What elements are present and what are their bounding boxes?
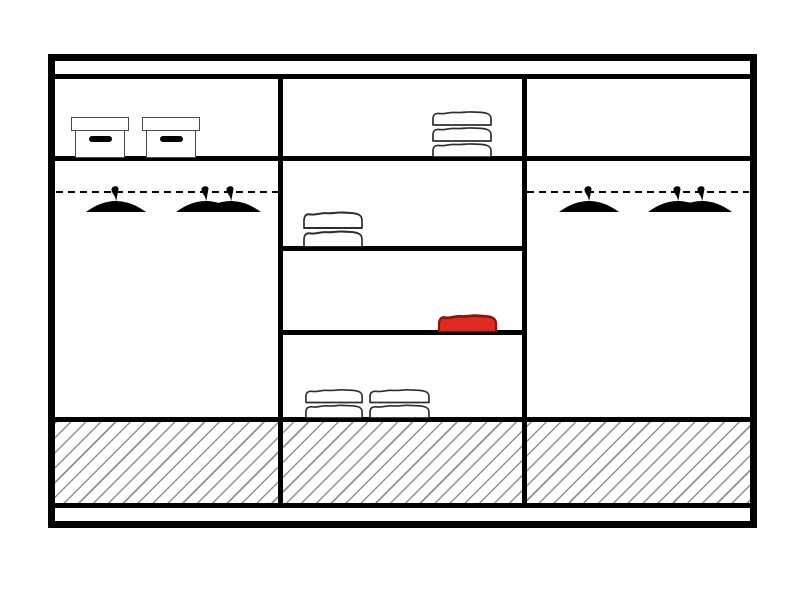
- wardrobe-frame: [48, 54, 757, 528]
- wardrobe-diagram: [0, 0, 800, 600]
